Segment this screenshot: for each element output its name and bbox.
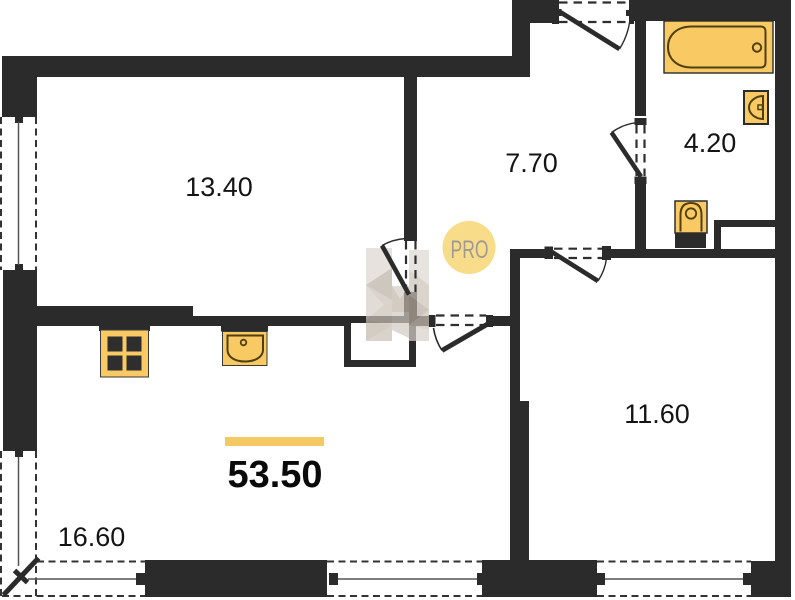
svg-text:13.40: 13.40 [185, 172, 253, 202]
svg-text:7.70: 7.70 [505, 148, 558, 178]
svg-text:53.50: 53.50 [227, 454, 322, 496]
svg-text:16.60: 16.60 [58, 522, 126, 552]
svg-text:PRO: PRO [451, 236, 489, 264]
svg-text:11.60: 11.60 [624, 399, 690, 429]
svg-text:4.20: 4.20 [684, 128, 737, 158]
